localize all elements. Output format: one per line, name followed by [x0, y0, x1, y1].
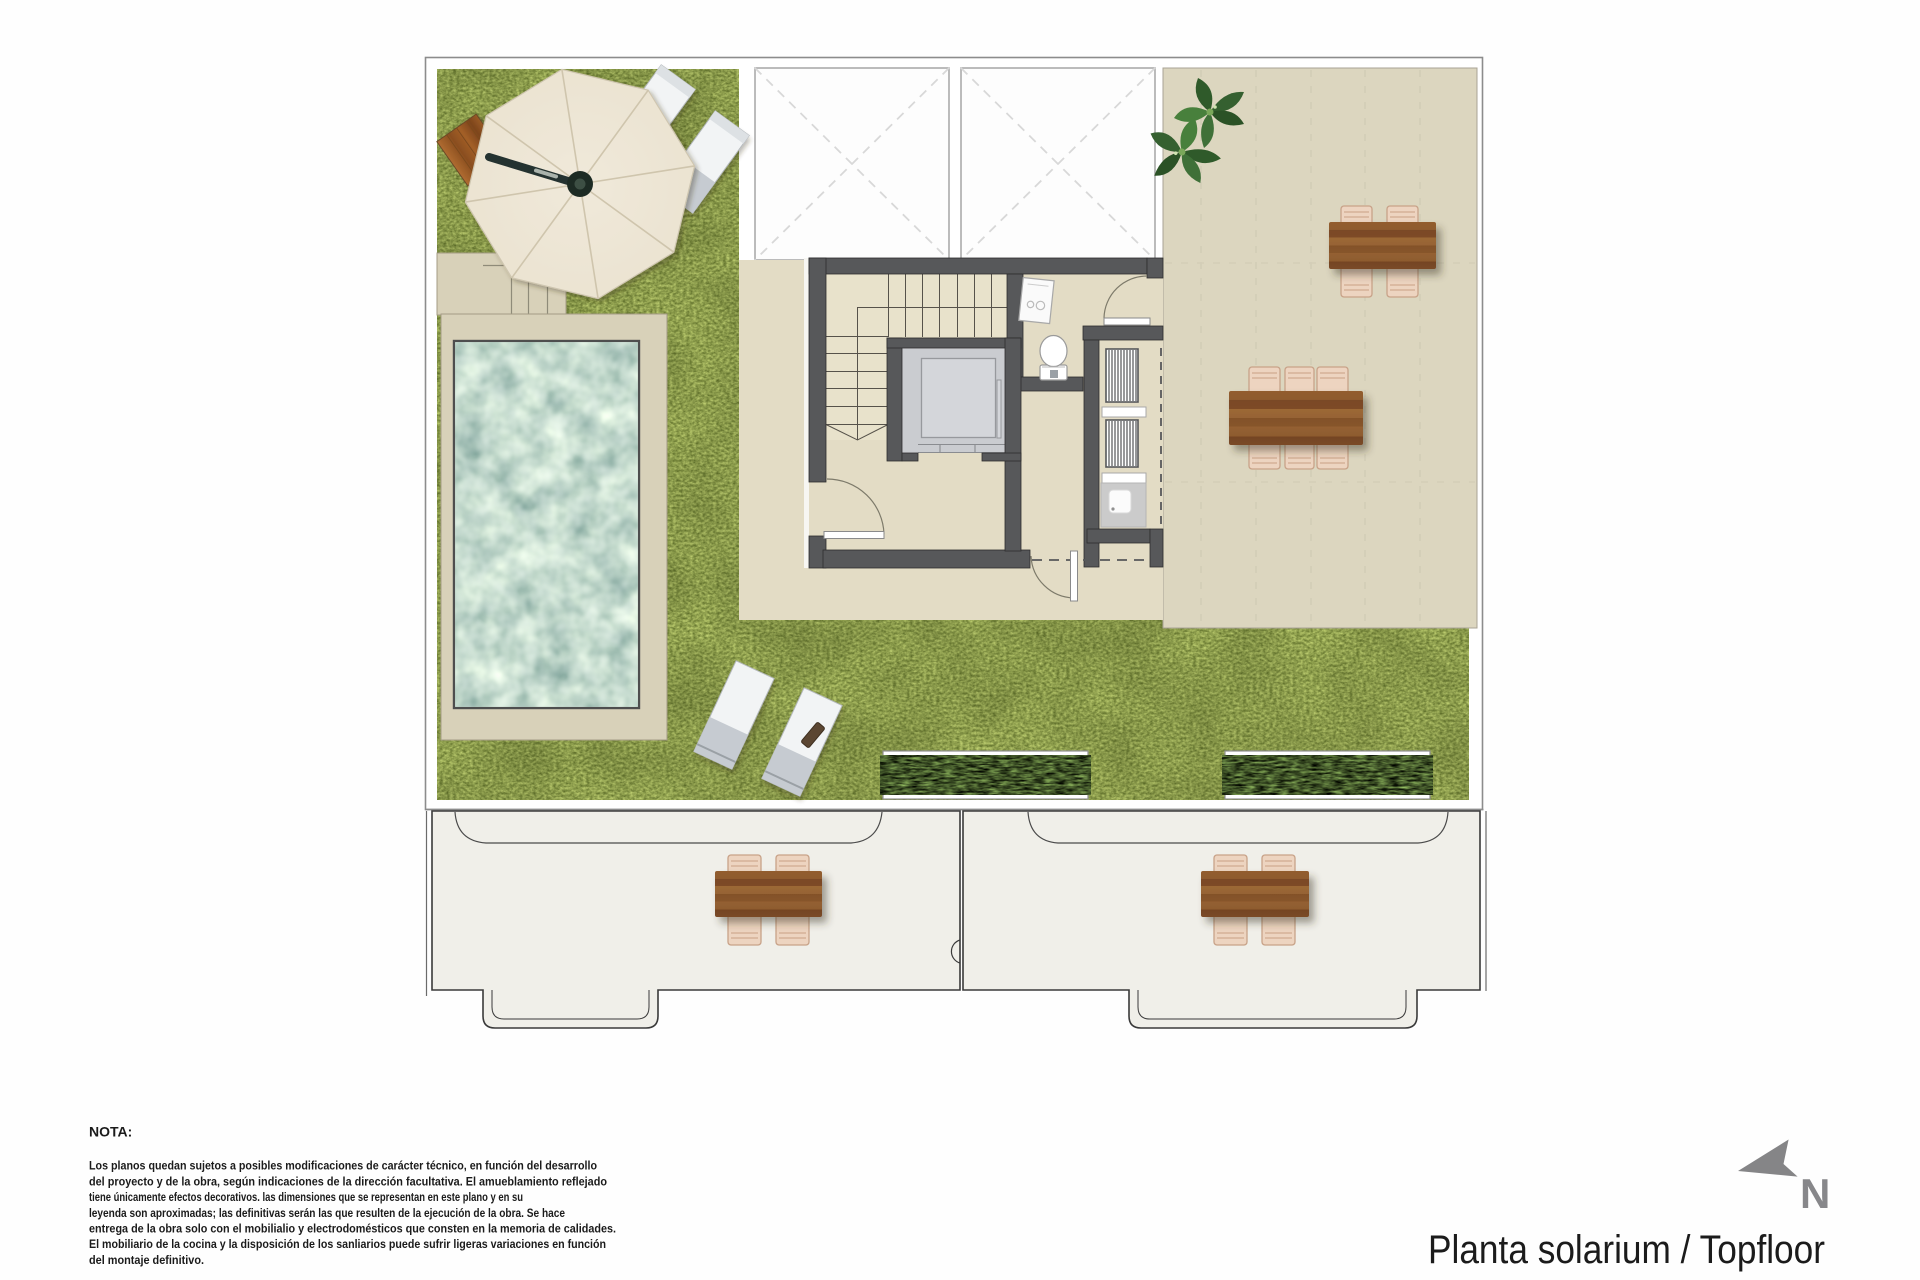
svg-text:tiene únicamente efectos decor: tiene únicamente efectos decorativos. la… — [89, 1190, 523, 1204]
svg-text:N: N — [1800, 1170, 1830, 1217]
svg-text:leyenda son aproximadas; las d: leyenda son aproximadas; las definitivas… — [89, 1206, 565, 1220]
svg-text:Planta solarium / Topfloor: Planta solarium / Topfloor — [1428, 1228, 1825, 1272]
svg-text:del montaje definitivo.: del montaje definitivo. — [89, 1253, 204, 1267]
svg-text:El mobiliario de la cocina y l: El mobiliario de la cocina y la disposic… — [89, 1237, 606, 1251]
svg-text:entrega de la obra solo con el: entrega de la obra solo con el mobiliali… — [89, 1222, 616, 1236]
svg-text:Los planos quedan sujetos a po: Los planos quedan sujetos a posibles mod… — [89, 1159, 597, 1173]
svg-text:NOTA:: NOTA: — [89, 1124, 132, 1140]
svg-text:del proyecto y de la obra, seg: del proyecto y de la obra, según indicac… — [89, 1174, 607, 1188]
